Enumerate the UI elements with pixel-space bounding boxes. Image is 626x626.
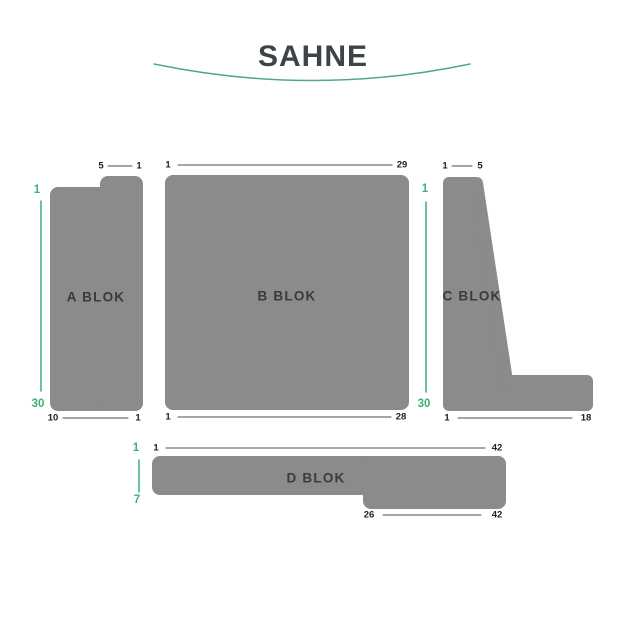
c-blok-bottom-right-seat: 18: [581, 413, 592, 424]
a-blok-top-right-seat: 1: [136, 161, 141, 172]
c-blok-row-start: 1: [422, 183, 428, 195]
d-blok-top-right-seat: 42: [492, 443, 503, 454]
a-blok-row-start: 1: [34, 184, 40, 196]
b-blok-top-left-seat: 1: [165, 160, 170, 171]
b-blok-label: B BLOK: [258, 289, 317, 304]
a-blok-bottom-right-seat: 1: [135, 413, 140, 424]
a-blok-bottom-left-seat: 10: [48, 413, 59, 424]
c-blok-label: C BLOK: [443, 289, 502, 304]
a-blok-top-left-seat: 5: [98, 161, 103, 172]
d-blok-bottom-right-seat: 42: [492, 510, 503, 521]
d-blok-label: D BLOK: [287, 471, 346, 486]
c-blok-top-left-seat: 1: [442, 161, 447, 172]
venue-shapes-canvas: [0, 0, 626, 626]
c-blok-row-end: 30: [418, 398, 431, 410]
d-blok-top-left-seat: 1: [153, 443, 158, 454]
d-blok-bottom-left-seat: 26: [364, 510, 375, 521]
a-blok-row-end: 30: [32, 398, 45, 410]
b-blok-top-right-seat: 29: [397, 160, 408, 171]
b-blok-bottom-left-seat: 1: [165, 412, 170, 423]
seating-map: SAHNE 5 1 10 1 1 30 A BLOK 1 29 1 28 B B…: [0, 0, 626, 626]
d-blok-row-end: 7: [134, 494, 140, 506]
page-title: SAHNE: [258, 40, 368, 74]
b-blok-bottom-right-seat: 28: [396, 412, 407, 423]
a-blok-label: A BLOK: [67, 290, 125, 305]
c-blok-top-right-seat: 5: [477, 161, 482, 172]
c-blok-bottom-left-seat: 1: [444, 413, 449, 424]
d-blok-row-start: 1: [133, 442, 139, 454]
